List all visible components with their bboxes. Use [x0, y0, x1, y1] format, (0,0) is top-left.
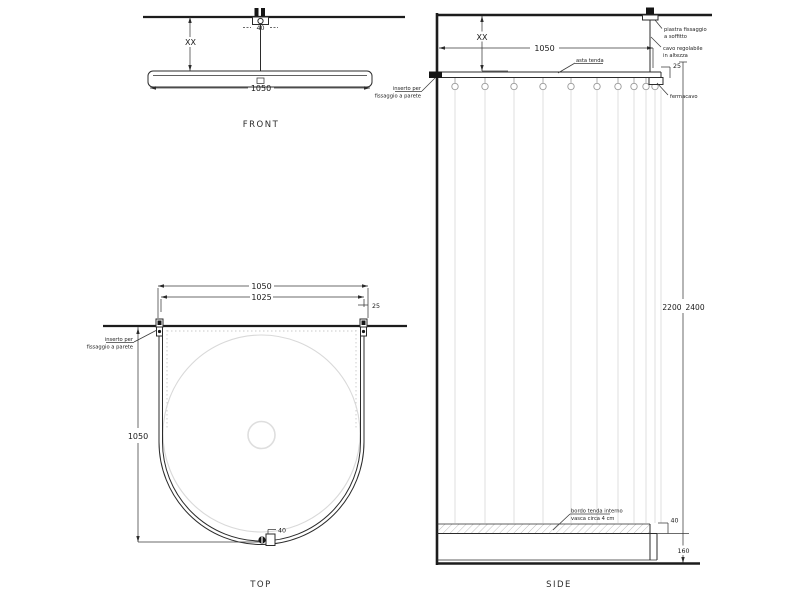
top-depth-dim: 1050 [128, 327, 260, 542]
side-ceiling-plate-label-line1: piastra fissaggio [664, 27, 707, 33]
side-curtain-rings [452, 78, 658, 90]
top-side-offset-dim: 25 [358, 303, 380, 310]
side-curtain-edge-label-line2: vasca circa 4 cm [571, 516, 614, 522]
drawing-canvas: 40 XX 1050 FRONT [0, 0, 800, 600]
technical-drawing: 40 XX 1050 FRONT [0, 0, 800, 600]
top-curtain-rod [159, 331, 364, 545]
top-tub-outline [163, 330, 360, 532]
side-rod-length-dim-value: 1050 [534, 44, 554, 53]
top-wall-insert-label: inserto per fissaggio a parete [87, 331, 156, 351]
side-tub-height-dim: 160 [657, 534, 692, 556]
side-curtain-overlap-dim-value: 40 [671, 518, 679, 525]
top-depth-dim-value: 1050 [128, 432, 148, 441]
side-rod-offset-dim-value: 25 [673, 63, 681, 70]
top-inner-width-dim: 1025 [161, 293, 364, 312]
side-wall-insert-bracket [429, 72, 442, 79]
side-total-height-dim: 2200 2400 [662, 62, 704, 563]
top-wall-insert-label-line2: fissaggio a parete [87, 345, 133, 351]
top-view: 1050 1025 25 1050 [87, 282, 407, 590]
side-total-height-min-value: 2200 [662, 303, 681, 312]
side-wall-insert-label: inserto per fissaggio a parete [375, 78, 435, 100]
side-tub [437, 524, 657, 560]
top-drain-circle [248, 422, 275, 449]
top-side-offset-dim-value: 25 [372, 303, 380, 310]
side-total-height-max-value: 2400 [686, 303, 705, 312]
side-rod-label: asta tenda [558, 58, 604, 73]
front-width-dim-value: 1050 [251, 84, 271, 93]
side-rod-label-text: asta tenda [576, 58, 604, 64]
top-wall-insert-label-line1: inserto per [105, 337, 134, 343]
side-rod-offset-dim: 25 [661, 63, 681, 78]
front-height-dim: XX [183, 17, 218, 71]
side-ceiling-plate-label: piastra fissaggio a soffitto [655, 20, 707, 40]
front-height-dim-value: XX [185, 38, 196, 47]
top-wall-bracket-left [156, 319, 163, 336]
side-curtain-edge-label-line1: bordo tenda interno [571, 509, 623, 515]
side-cable-label-line1: cavo regolabile [663, 46, 703, 52]
side-cable-label-line2: in altezza [663, 53, 688, 59]
top-tub-circle [163, 335, 360, 532]
top-fixture-dim-value: 40 [278, 528, 286, 535]
top-outer-width-dim-value: 1050 [251, 282, 271, 291]
front-view-caption: FRONT [243, 120, 280, 130]
side-rod-length-dim: 1050 [439, 44, 653, 68]
top-inner-width-dim-value: 1025 [251, 293, 271, 302]
side-ceiling-plate-label-line2: a soffitto [664, 34, 687, 40]
side-tub-height-dim-value: 160 [677, 548, 689, 555]
side-cable-stop-label: fermacavo [657, 83, 698, 100]
side-height-adjust-dim-value: XX [477, 33, 488, 42]
side-curtain-folds [455, 90, 661, 523]
front-view: 40 XX 1050 FRONT [143, 8, 405, 130]
top-wall-bracket-right [360, 319, 367, 336]
top-view-caption: TOP [249, 580, 272, 590]
side-wall-insert-label-line2: fissaggio a parete [375, 94, 421, 100]
side-wall-insert-label-line1: inserto per [393, 86, 422, 92]
side-cable-stop-label-text: fermacavo [670, 94, 698, 100]
side-cable-label: cavo regolabile in altezza [651, 37, 703, 59]
side-view: XX 1050 25 2200 2400 [375, 8, 712, 591]
side-height-adjust-dim: XX [475, 16, 509, 71]
side-curtain-rod [437, 72, 661, 78]
side-view-caption: SIDE [546, 580, 572, 590]
side-cable-stop [649, 78, 663, 85]
